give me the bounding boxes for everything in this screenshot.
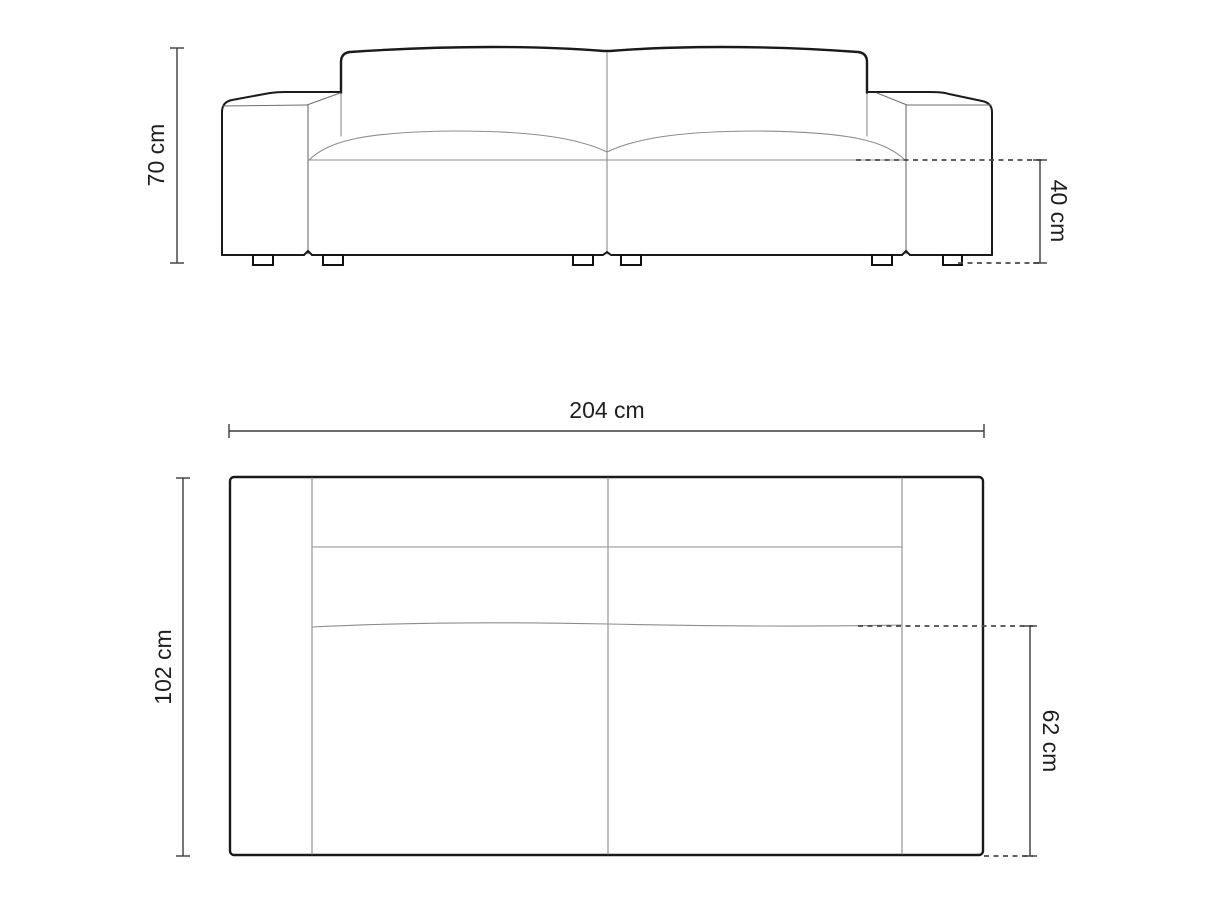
dimension-label-62cm: 62 cm (1038, 710, 1064, 773)
left-armrest (222, 92, 341, 255)
right-armrest-outline (867, 92, 992, 255)
leg (323, 255, 343, 265)
leg (253, 255, 273, 265)
right-armrest (867, 92, 992, 255)
diagram-canvas: 70 cm 40 cm 204 cm (0, 0, 1214, 911)
left-armrest-top-front-edge (223, 105, 307, 106)
seat-cushions (308, 53, 905, 254)
dimension-overall-height: 70 cm (143, 48, 184, 263)
leg (621, 255, 641, 265)
seat-front-plan-seam (312, 623, 902, 627)
dimension-label-102cm: 102 cm (150, 629, 176, 704)
right-cushion-top-seam (607, 131, 905, 160)
front-view: 70 cm 40 cm (143, 47, 1072, 265)
left-armrest-top-inner-seam (307, 93, 340, 105)
plan-outline (230, 477, 983, 855)
leg (872, 255, 892, 265)
dimension-overall-depth: 102 cm (150, 478, 190, 856)
leg (573, 255, 593, 265)
dimension-overall-width: 204 cm (229, 397, 984, 438)
dimension-label-40cm: 40 cm (1046, 180, 1072, 243)
left-armrest-outline (222, 92, 341, 255)
left-cushion-top-seam (309, 131, 607, 160)
sofa-plan (230, 477, 983, 855)
legs (253, 255, 962, 265)
sofa-front-elevation (222, 47, 992, 265)
dimension-seat-height: 40 cm (856, 160, 1072, 263)
dimension-seat-depth: 62 cm (858, 626, 1064, 856)
sofa-dimension-diagram: 70 cm 40 cm 204 cm (0, 0, 1214, 911)
right-armrest-top-inner-seam (877, 93, 907, 105)
top-view: 204 cm 102 cm (150, 397, 1064, 856)
dimension-label-204cm: 204 cm (569, 397, 644, 423)
backrest-outline (341, 47, 867, 93)
dimension-label-70cm: 70 cm (143, 124, 169, 187)
